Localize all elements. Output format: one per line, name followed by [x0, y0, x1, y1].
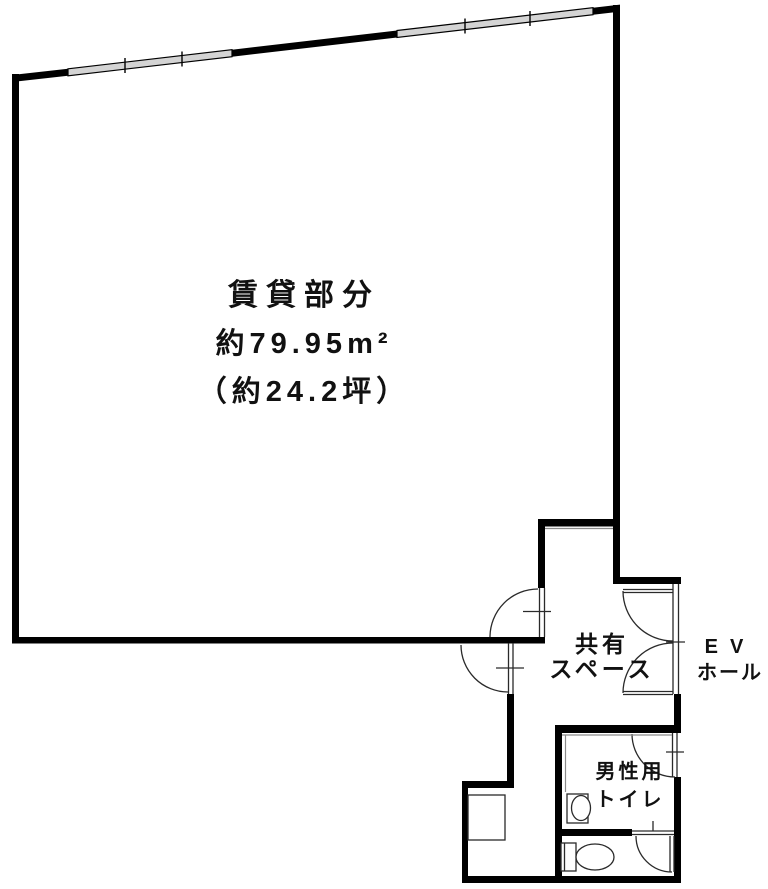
wall-right [613, 5, 620, 577]
wall-wc-top [555, 725, 681, 733]
urinal-bowl [572, 796, 591, 821]
floorplan: 賃貸部分 約79.95m² （約24.2坪） 共有 スペース EV ホール 男性… [0, 0, 768, 889]
wall-right-mid [674, 694, 681, 733]
window-band-b [397, 8, 593, 38]
toilet-tank [561, 843, 576, 871]
rental-area-size-tsubo: （約24.2坪） [198, 368, 410, 416]
wall-bottom [462, 876, 681, 883]
ev-hall-line2: ホール [697, 660, 763, 686]
door-swing-arc-icon [636, 836, 672, 872]
wall-corridor-left [507, 694, 514, 788]
wall-common-left-upper [538, 519, 545, 588]
mens-toilet-line2: トイレ [596, 786, 665, 814]
common-space-line2: スペース [549, 657, 654, 682]
toilet-bowl [576, 844, 614, 870]
rental-area-size-m2: 約79.95m² [198, 320, 410, 368]
wall-top-slant-seg1 [12, 69, 68, 82]
window-band-a [68, 50, 232, 76]
wall-bottom-main-room [12, 637, 545, 644]
toilet-icon [561, 843, 614, 871]
door-main-room [490, 588, 551, 637]
rental-area-name: 賃貸部分 [198, 272, 410, 320]
wall-nook-top [462, 781, 514, 788]
ev-hall-line1: EV [697, 634, 763, 660]
mens-toilet-line1: 男性用 [596, 758, 665, 786]
urinal-icon [567, 794, 591, 823]
ev-hall-label: EV ホール [697, 634, 763, 686]
door-swing-arc-icon [490, 589, 538, 637]
rental-area-label: 賃貸部分 約79.95m² （約24.2坪） [198, 272, 410, 416]
door-corridor [461, 643, 524, 694]
wall-top-slant-seg2 [232, 31, 397, 57]
wall-nook-left [462, 781, 468, 883]
sink-counter-icon [468, 795, 505, 840]
mens-toilet-label: 男性用 トイレ [596, 758, 665, 814]
floorplan-drawing [0, 0, 768, 889]
door-lower-wc [632, 821, 674, 872]
wall-left [12, 74, 19, 643]
common-space-line1: 共有 [549, 632, 654, 657]
common-space-label: 共有 スペース [549, 632, 654, 682]
walls [12, 5, 681, 883]
wall-ev-top [613, 577, 681, 584]
wall-step [538, 519, 620, 527]
wall-wc-divider [555, 829, 632, 836]
wall-right-lower [674, 777, 681, 883]
